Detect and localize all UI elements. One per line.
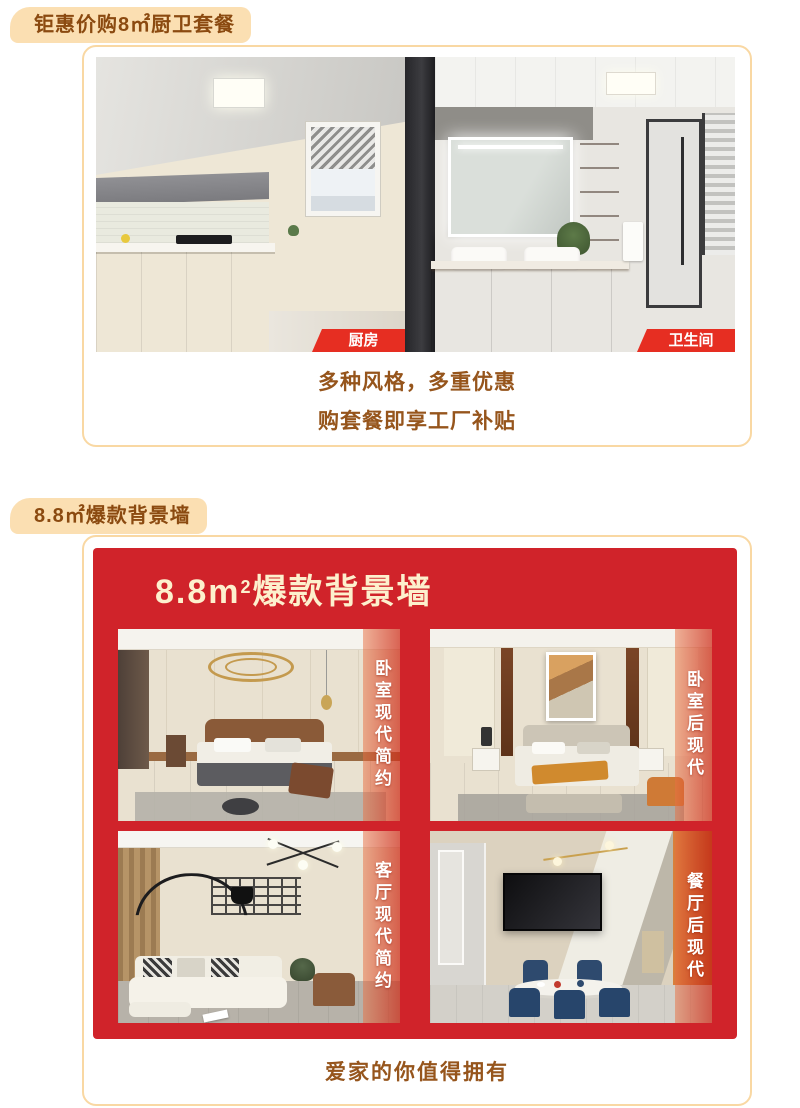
card-title-sup: 2 (241, 577, 253, 597)
dining-chair-front3 (599, 988, 630, 1017)
bedroom1-rug (135, 792, 386, 821)
living-plant (290, 958, 315, 981)
kitchen-cooktop (176, 235, 232, 244)
bathroom-ceiling-light (606, 72, 656, 96)
kitchen-window-blind (311, 127, 375, 169)
bedroom2-wood-strip-left (501, 648, 514, 756)
dining-pedestal (642, 931, 665, 973)
bathroom-upper-wall (435, 107, 593, 139)
bedroom2-table-lamp (481, 727, 492, 746)
card-title: 8.8m2爆款背景墙 (93, 548, 737, 629)
ring-chandelier-inner (225, 658, 277, 676)
sofa-cushion-checkered (143, 958, 171, 979)
table-dish-blue (577, 980, 584, 987)
kitchen-cabinets (96, 252, 275, 352)
card-title-prefix: 8.8m (155, 573, 241, 611)
bedroom1-pillow2 (265, 738, 302, 751)
wall-tv (503, 873, 602, 931)
dining-pendant-light (543, 839, 628, 866)
chandelier-bulb2 (332, 842, 342, 852)
sputnik-chandelier (265, 837, 350, 872)
bedroom2-ceiling (430, 629, 712, 648)
bedroom1-ceiling (118, 629, 400, 650)
section2-panel: 8.8m2爆款背景墙 (82, 535, 752, 1106)
room-style-label: 卧室后现代 (681, 670, 706, 780)
hallway-door (438, 850, 463, 965)
dining-chair-front2 (554, 990, 585, 1019)
section1-badge: 钜惠价购8㎡厨卫套餐 (10, 7, 251, 43)
bedroom2-nightstand-right (636, 748, 664, 771)
bathroom-ceiling (435, 57, 735, 107)
kitchen-ribbon: 厨房 (312, 329, 405, 352)
kitchen-ceiling-light (213, 78, 265, 108)
section1-panel: 厨房 卫生间 (82, 45, 752, 447)
section2-badge: 8.8㎡爆款背景墙 (10, 498, 207, 534)
ring-chandelier (208, 652, 294, 682)
bedroom2-artwork (546, 652, 597, 721)
room-style-label: 客厅现代简约 (369, 861, 394, 993)
living-ceiling (118, 831, 400, 848)
bathroom-shower-glass (646, 119, 702, 308)
kitchen-plant (288, 225, 299, 236)
kitchen-window-city-view (311, 196, 375, 211)
room-style-strip: 餐厅后现代 (675, 831, 712, 1023)
bedroom1-side-table (166, 735, 186, 768)
room-style-label: 餐厅后现代 (681, 872, 706, 982)
kitchen-window (306, 122, 380, 216)
slogan-line1: 多种风格，多重优惠 (84, 366, 750, 396)
card-title-suffix: 爆款背景墙 (253, 573, 433, 611)
sofa-cushion (177, 958, 205, 979)
pendant-bulb1 (553, 857, 562, 866)
kitchen-range-hood (96, 172, 269, 205)
pendant-bulb (321, 695, 332, 710)
bathroom-vanity-top (431, 261, 629, 270)
bedroom1-throw (288, 763, 334, 799)
bedroom2-pillow (532, 742, 566, 754)
chandelier-bulb3 (298, 860, 308, 870)
sofa-chaise (129, 1002, 191, 1017)
bathroom-ribbon: 卫生间 (637, 329, 735, 352)
bathroom-mirror (448, 137, 573, 237)
room-grid: 卧室现代简约 (118, 629, 712, 1023)
promo-page: 钜惠价购8㎡厨卫套餐 厨房 (0, 0, 800, 1108)
kitchen-photo: 厨房 (96, 57, 405, 352)
kitchen-countertop (96, 243, 275, 252)
kitchen-bath-photos: 厨房 卫生间 (96, 57, 735, 352)
bathroom-mirror-light (458, 145, 563, 149)
room-tile-dining-postmodern: 餐厅后现代 (430, 831, 712, 1023)
arc-lamp-shade (231, 887, 254, 904)
bedroom2-nightstand-left (472, 748, 500, 771)
bathroom-window-blinds (702, 113, 735, 255)
bedroom1-pendant-light (326, 650, 327, 696)
bathroom-photo: 卫生间 (405, 57, 735, 352)
slogan-line2: 购套餐即享工厂补贴 (84, 405, 750, 435)
bathroom-vanity-cabinet (431, 269, 629, 352)
bathroom-towel (623, 222, 643, 260)
room-tile-bedroom-modern: 卧室现代简约 (118, 629, 400, 821)
chandelier-bulb (268, 839, 278, 849)
bedroom2-bench (526, 794, 622, 813)
room-style-strip: 卧室后现代 (675, 629, 712, 821)
bedroom1-pillow (214, 738, 251, 751)
shower-rail (681, 137, 684, 265)
living-accent-chair (313, 973, 355, 1006)
room-style-label: 卧室现代简约 (369, 659, 394, 791)
sofa-cushion-checkered2 (211, 958, 239, 979)
bathroom-door-frame (405, 57, 435, 352)
room-style-strip: 卧室现代简约 (363, 629, 400, 821)
bedroom2-pillow2 (577, 742, 611, 754)
dining-chair-front1 (509, 988, 540, 1017)
bedroom1-curtain (118, 650, 149, 769)
kitchen-yellow-cup (121, 234, 130, 243)
room-style-strip: 客厅现代简约 (363, 831, 400, 1023)
table-dish-white (537, 982, 545, 987)
room-tile-bedroom-postmodern: 卧室后现代 (430, 629, 712, 821)
card-footer-text: 爱家的你值得拥有 (84, 1056, 750, 1086)
background-wall-card: 8.8m2爆款背景墙 (93, 548, 737, 1039)
room-tile-living-modern: 客厅现代简约 (118, 831, 400, 1023)
